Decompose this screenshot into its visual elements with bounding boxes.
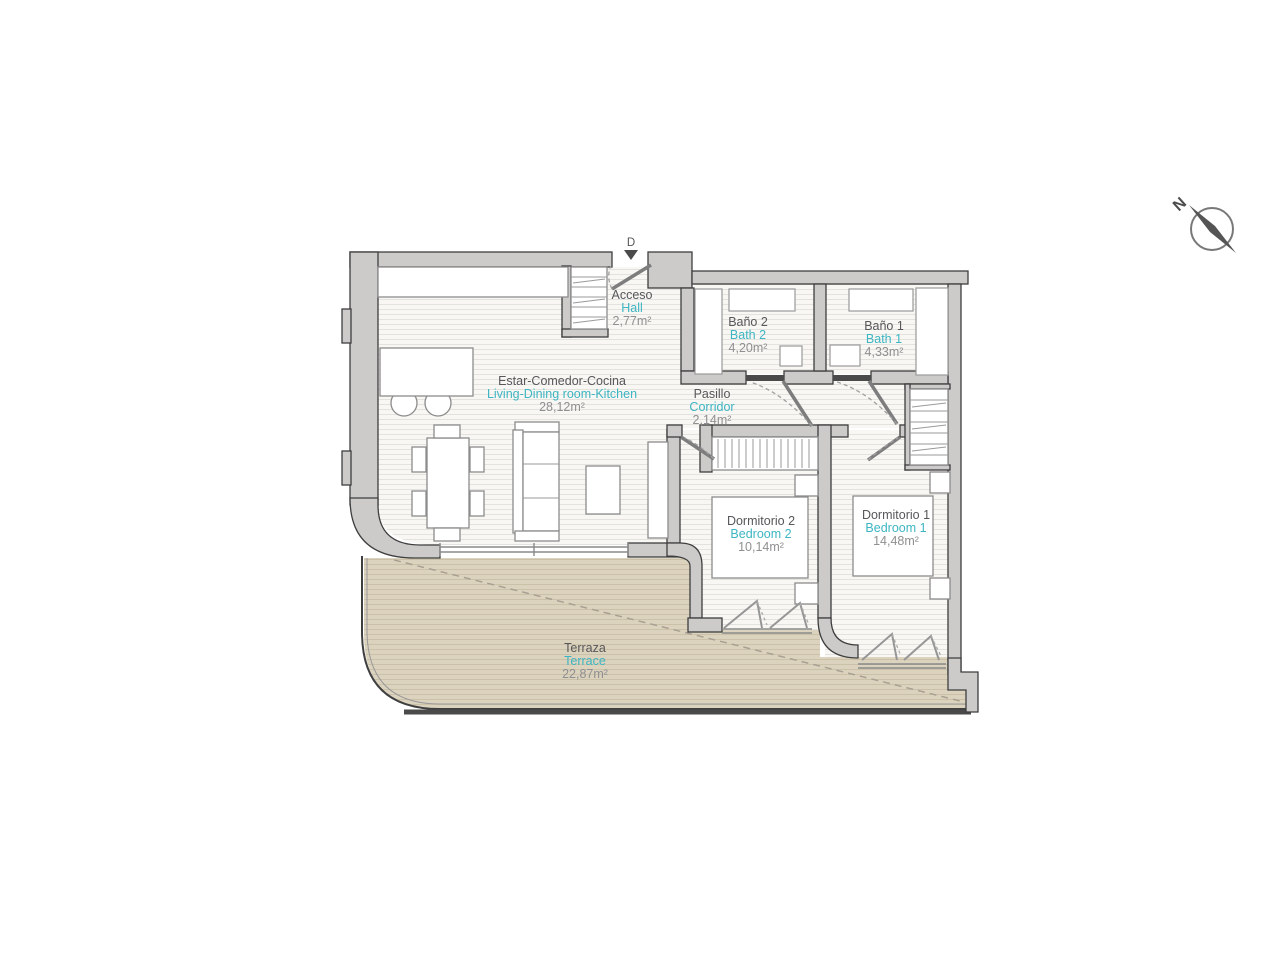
- entry-door-label: D: [627, 237, 635, 249]
- bedroom2-wardrobe: [712, 437, 818, 470]
- entry-marker: D: [624, 237, 638, 260]
- wall-bath-divider: [814, 284, 826, 371]
- dining-chair: [434, 528, 460, 541]
- bath1-tub: [849, 289, 913, 311]
- dining-chair: [412, 447, 426, 472]
- wall-bath-bottom-b: [784, 371, 833, 384]
- hall-closet: [571, 267, 607, 329]
- bath1-door-sill: [833, 375, 871, 381]
- room-name-en: Bath 2: [730, 328, 766, 342]
- room-area: 2,14m²: [693, 413, 732, 427]
- floor-plan-drawing: D Acceso Hall 2,77m² Baño 2 Bath 2 4,20m…: [0, 0, 1280, 960]
- room-name: Baño 1: [864, 319, 904, 333]
- wall-hall-right: [681, 288, 694, 371]
- compass-north-label: N: [1170, 194, 1190, 214]
- room-area: 22,87m²: [562, 667, 608, 681]
- dining-chair: [434, 425, 460, 438]
- wall-left: [350, 252, 378, 505]
- room-area: 10,14m²: [738, 540, 784, 554]
- room-name-en: Terrace: [564, 654, 606, 668]
- room-area: 4,20m²: [729, 341, 768, 355]
- dining-chair: [412, 491, 426, 516]
- room-area: 2,77m²: [613, 314, 652, 328]
- dining-chair: [470, 491, 484, 516]
- sofa-back: [513, 430, 523, 533]
- room-name: Dormitorio 1: [862, 508, 930, 522]
- compass: N: [1170, 194, 1236, 253]
- room-name: Dormitorio 2: [727, 514, 795, 528]
- wall-corridor-bottom-a: [667, 425, 682, 437]
- wall-entry-jamb: [648, 252, 692, 288]
- room-name-en: Bedroom 1: [865, 521, 926, 535]
- bedroom2-nightstand: [795, 583, 818, 604]
- room-name-en: Living-Dining room-Kitchen: [487, 387, 637, 401]
- wall-bedroom-divider: [818, 425, 831, 618]
- room-name: Pasillo: [694, 387, 731, 401]
- bedroom1-nightstand: [930, 578, 950, 599]
- bath1-sink: [830, 345, 860, 366]
- wall-left-pillar-1: [342, 309, 351, 343]
- dining-table: [427, 438, 469, 528]
- corridor-closet: [910, 389, 948, 465]
- coffee-table: [586, 466, 620, 514]
- bath2-tub: [729, 289, 795, 311]
- wall-corridor-closet-top: [905, 384, 950, 389]
- wall-bed2-bottom-left: [688, 618, 722, 632]
- room-name: Estar-Comedor-Cocina: [498, 374, 626, 388]
- room-name-en: Corridor: [689, 400, 734, 414]
- wall-top-left: [350, 252, 612, 267]
- compass-needle-icon: [1189, 205, 1236, 253]
- room-name: Acceso: [612, 288, 653, 302]
- bath1-shower: [916, 288, 948, 375]
- wall-hall-closet-bottom: [562, 329, 608, 337]
- floor-plan-page: D Acceso Hall 2,77m² Baño 2 Bath 2 4,20m…: [0, 0, 1280, 960]
- wall-corridor-closet-left: [905, 384, 910, 470]
- room-label-bano2: Baño 2 Bath 2 4,20m²: [728, 315, 768, 355]
- wall-corridor-closet-bottom: [905, 465, 950, 470]
- room-name-en: Bedroom 2: [730, 527, 791, 541]
- room-label-pasillo: Pasillo Corridor 2,14m²: [689, 387, 734, 427]
- entry-arrow-icon: [624, 250, 638, 260]
- room-name-en: Bath 1: [866, 332, 902, 346]
- wall-left-pillar-2: [342, 451, 351, 485]
- bath2-shower: [695, 289, 722, 374]
- bath2-door-sill: [746, 375, 784, 381]
- sofa-seats: [523, 432, 559, 531]
- wall-living-right: [667, 430, 680, 543]
- room-name: Baño 2: [728, 315, 768, 329]
- bedroom2-nightstand: [795, 475, 818, 496]
- room-name-en: Hall: [621, 301, 643, 315]
- room-area: 4,33m²: [865, 345, 904, 359]
- kitchen-counter: [378, 267, 568, 297]
- kitchen-island: [380, 348, 473, 396]
- room-area: 28,12m²: [539, 400, 585, 414]
- room-name: Terraza: [564, 641, 606, 655]
- bath2-sink: [780, 346, 802, 366]
- room-area: 14,48m²: [873, 534, 919, 548]
- sofa-arm-bottom: [515, 531, 559, 541]
- dining-chair: [470, 447, 484, 472]
- bedroom1-nightstand: [930, 472, 950, 493]
- wall-top-right: [692, 271, 968, 284]
- room-label-terraza: Terraza Terrace 22,87m²: [562, 641, 608, 681]
- tv-sideboard: [648, 442, 668, 538]
- room-label-bano1: Baño 1 Bath 1 4,33m²: [864, 319, 904, 359]
